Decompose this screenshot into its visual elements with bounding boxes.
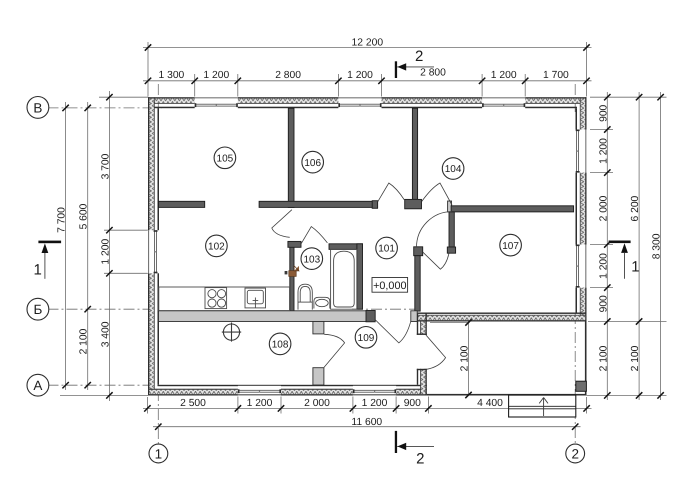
svg-text:1 300: 1 300 <box>159 70 185 81</box>
svg-text:+0,000: +0,000 <box>373 280 406 292</box>
svg-text:2 000: 2 000 <box>598 195 609 221</box>
svg-text:900: 900 <box>598 104 609 121</box>
svg-text:6 200: 6 200 <box>630 195 641 221</box>
svg-text:103: 103 <box>303 254 320 265</box>
svg-text:12 200: 12 200 <box>352 37 384 48</box>
svg-text:101: 101 <box>378 244 395 255</box>
svg-text:2 800: 2 800 <box>275 70 301 81</box>
svg-text:1 200: 1 200 <box>362 398 388 409</box>
svg-text:2 100: 2 100 <box>460 345 471 371</box>
svg-text:2 000: 2 000 <box>304 398 330 409</box>
svg-text:1: 1 <box>33 262 41 279</box>
svg-text:1 200: 1 200 <box>347 70 373 81</box>
svg-text:Б: Б <box>33 302 42 317</box>
svg-text:11 600: 11 600 <box>351 417 382 428</box>
svg-text:В: В <box>33 100 42 115</box>
svg-text:1: 1 <box>155 446 163 461</box>
svg-text:7 700: 7 700 <box>57 207 68 233</box>
svg-text:2 100: 2 100 <box>598 345 609 371</box>
svg-text:1: 1 <box>631 259 639 276</box>
svg-text:2: 2 <box>415 48 423 65</box>
svg-text:108: 108 <box>272 340 289 351</box>
svg-text:106: 106 <box>304 158 321 169</box>
svg-text:4 400: 4 400 <box>477 398 503 409</box>
svg-text:1 200: 1 200 <box>598 253 609 279</box>
svg-text:1 200: 1 200 <box>598 138 609 164</box>
svg-text:1 200: 1 200 <box>247 398 273 409</box>
svg-text:8 300: 8 300 <box>652 233 663 259</box>
svg-text:109: 109 <box>358 333 375 344</box>
svg-text:1 200: 1 200 <box>203 70 229 81</box>
svg-text:3 400: 3 400 <box>100 321 111 347</box>
svg-text:2 100: 2 100 <box>630 345 641 371</box>
svg-text:900: 900 <box>598 295 609 312</box>
svg-text:105: 105 <box>217 154 234 165</box>
svg-text:2 500: 2 500 <box>180 398 206 409</box>
svg-text:102: 102 <box>208 242 225 253</box>
svg-text:2 100: 2 100 <box>79 328 90 354</box>
svg-text:900: 900 <box>404 398 421 409</box>
svg-text:1 200: 1 200 <box>491 70 517 81</box>
svg-text:2: 2 <box>571 446 579 461</box>
svg-text:5 600: 5 600 <box>79 203 90 229</box>
svg-text:1 200: 1 200 <box>100 239 111 265</box>
svg-text:107: 107 <box>502 241 519 252</box>
svg-text:104: 104 <box>445 164 462 175</box>
svg-text:2 800: 2 800 <box>420 68 446 79</box>
svg-text:А: А <box>33 378 42 393</box>
svg-text:3 700: 3 700 <box>100 153 111 179</box>
svg-text:2: 2 <box>416 451 424 468</box>
svg-text:1 700: 1 700 <box>543 70 569 81</box>
